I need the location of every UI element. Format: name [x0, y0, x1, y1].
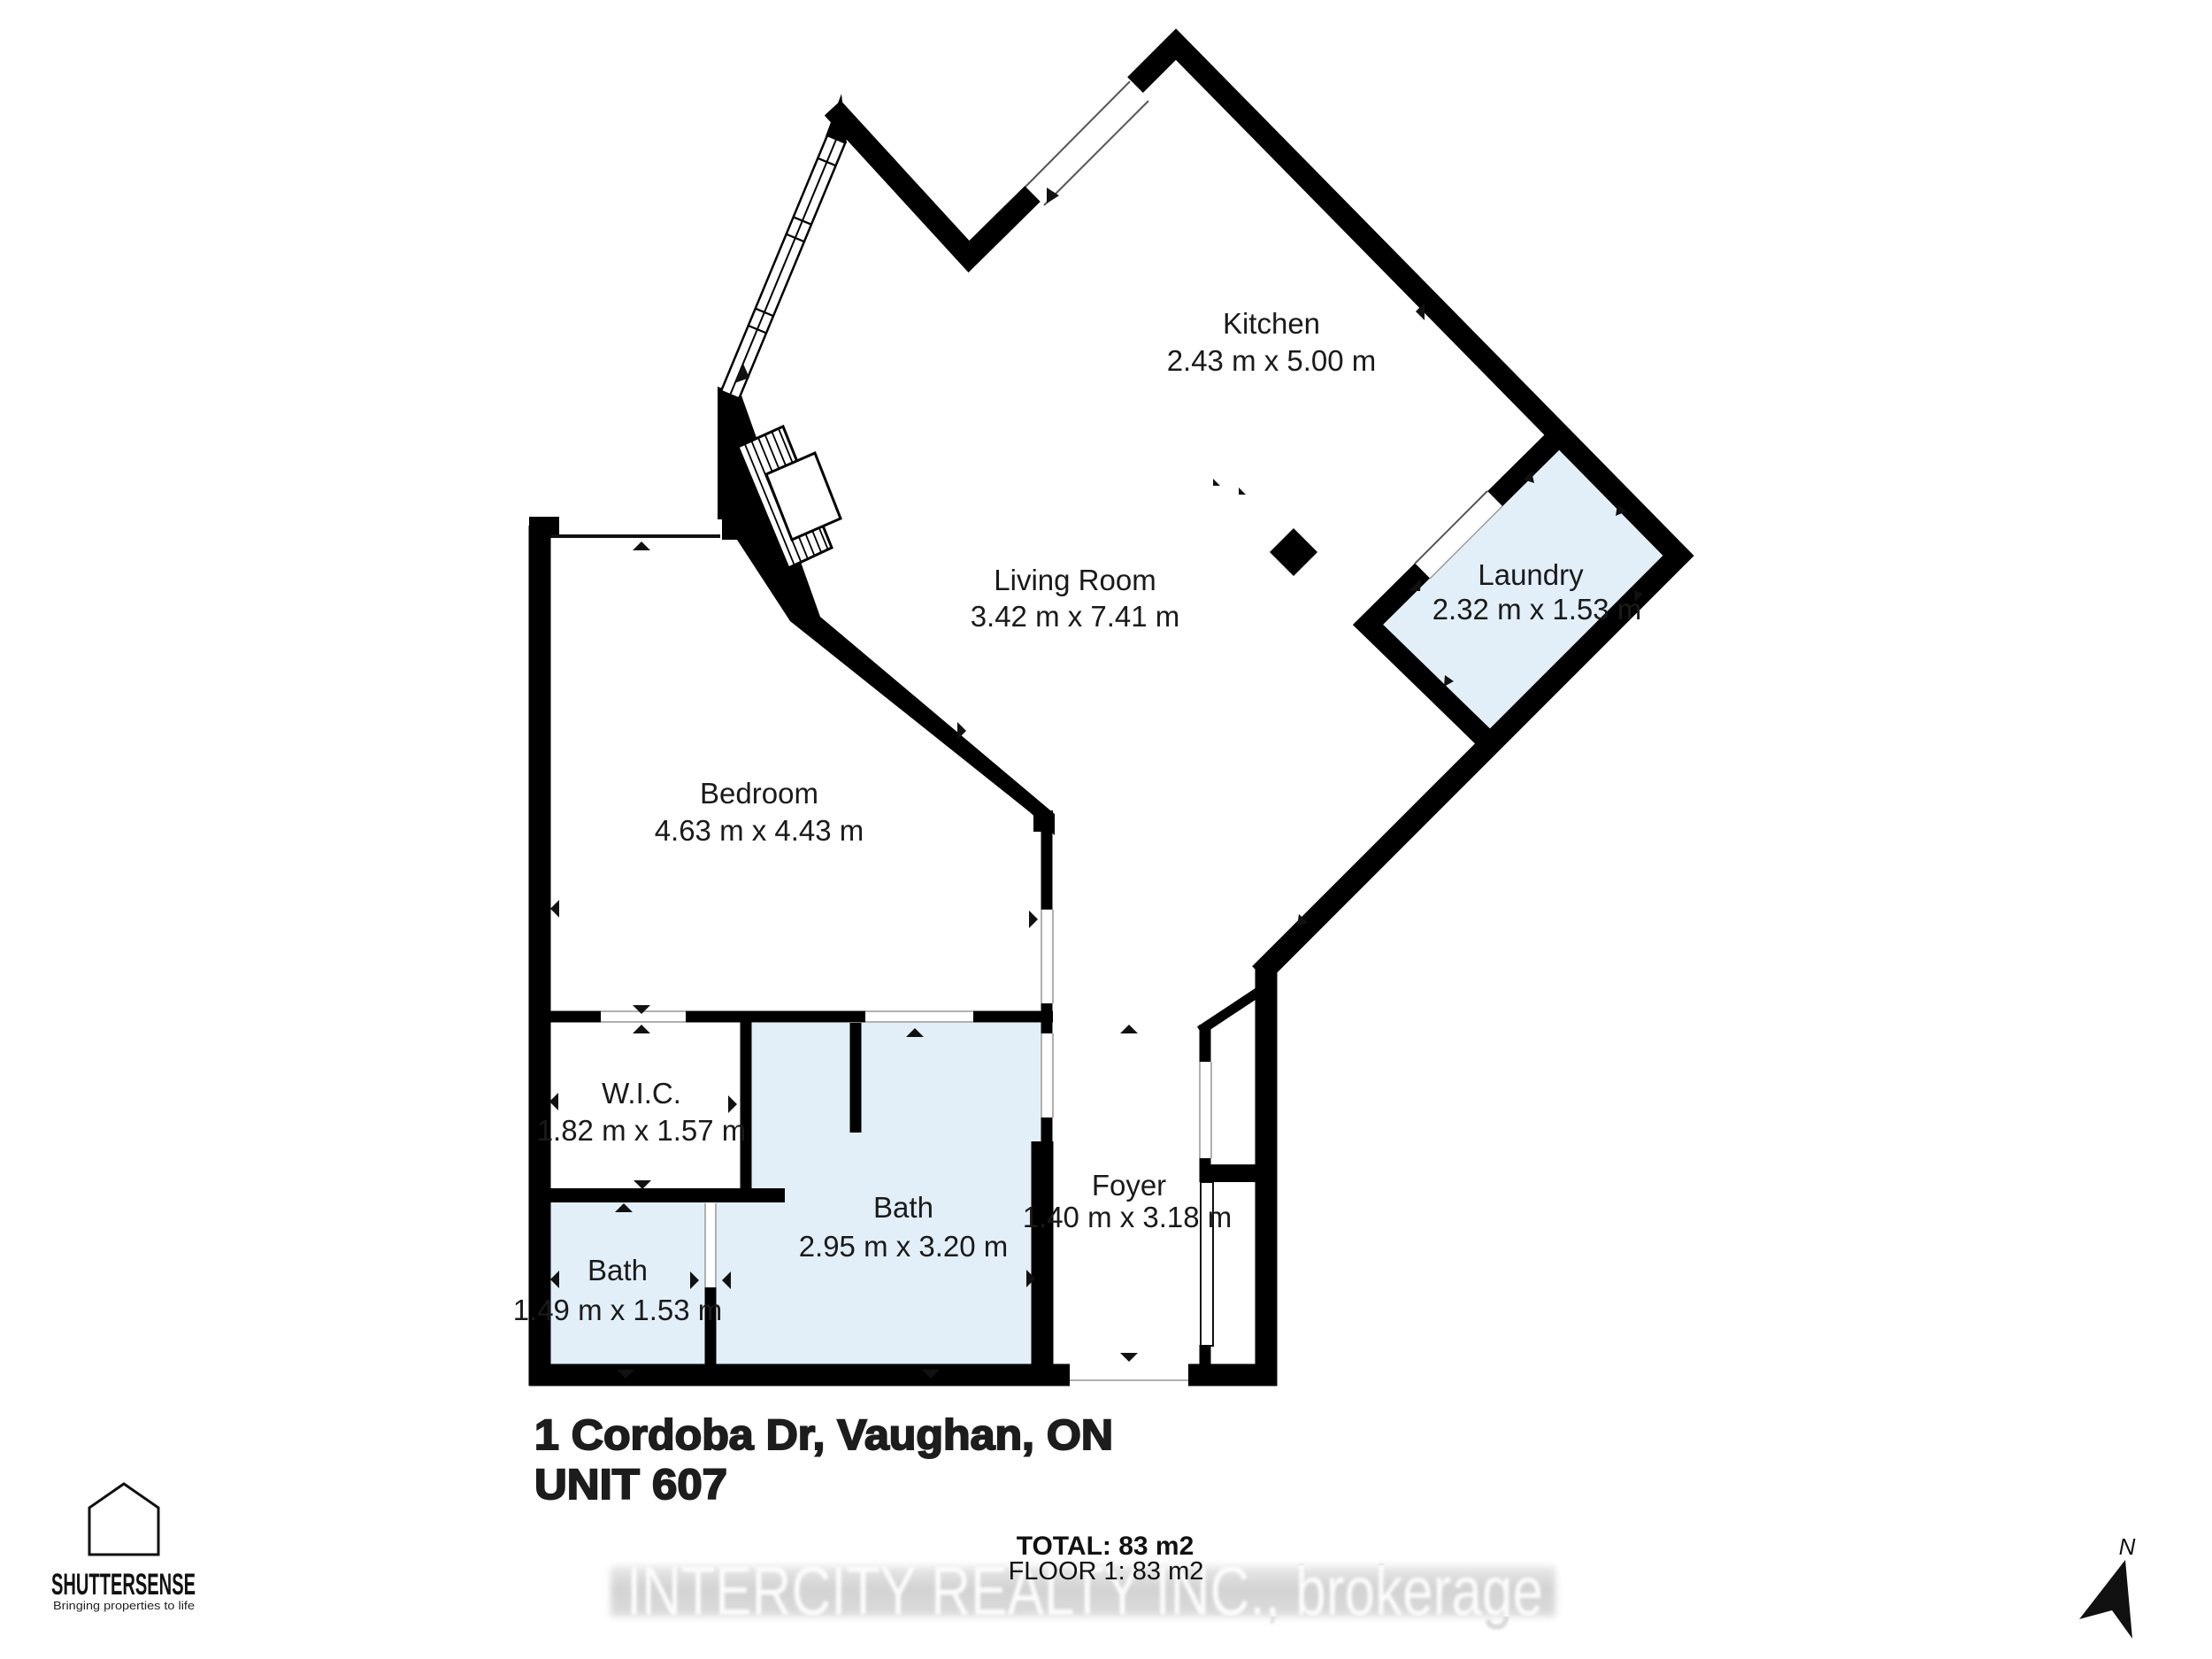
svg-text:2.32 m x 1.53 m: 2.32 m x 1.53 m — [1432, 593, 1642, 626]
svg-text:2.95 m x 3.20 m: 2.95 m x 3.20 m — [799, 1230, 1009, 1263]
svg-text:W.I.C.: W.I.C. — [602, 1077, 681, 1110]
svg-text:3.42 m x 7.41 m: 3.42 m x 7.41 m — [971, 600, 1180, 633]
svg-text:1 Cordoba Dr, Vaughan, ON: 1 Cordoba Dr, Vaughan, ON — [534, 1412, 1113, 1459]
svg-text:N: N — [2119, 1533, 2136, 1560]
svg-text:Bringing properties to life: Bringing properties to life — [53, 1599, 195, 1612]
svg-text:1.82 m x 1.57 m: 1.82 m x 1.57 m — [537, 1114, 747, 1147]
svg-text:Kitchen: Kitchen — [1223, 307, 1320, 340]
svg-text:Living Room: Living Room — [994, 564, 1156, 596]
svg-text:1.49 m x 1.53 m: 1.49 m x 1.53 m — [513, 1294, 723, 1326]
svg-text:Laundry: Laundry — [1478, 558, 1584, 591]
svg-text:Bath: Bath — [873, 1191, 933, 1224]
svg-text:Bath: Bath — [588, 1254, 648, 1286]
svg-text:2.43 m x 5.00 m: 2.43 m x 5.00 m — [1167, 344, 1377, 377]
svg-text:Foyer: Foyer — [1092, 1169, 1166, 1202]
svg-text:Bedroom: Bedroom — [700, 777, 818, 810]
svg-text:1.40 m x 3.18 m: 1.40 m x 3.18 m — [1023, 1201, 1233, 1233]
svg-text:UNIT 607: UNIT 607 — [534, 1462, 727, 1509]
svg-text:FLOOR 1: 83 m2: FLOOR 1: 83 m2 — [1009, 1557, 1204, 1586]
svg-text:4.63 m x 4.43 m: 4.63 m x 4.43 m — [655, 814, 864, 847]
svg-text:SHUTTERSENSE: SHUTTERSENSE — [51, 1568, 196, 1601]
